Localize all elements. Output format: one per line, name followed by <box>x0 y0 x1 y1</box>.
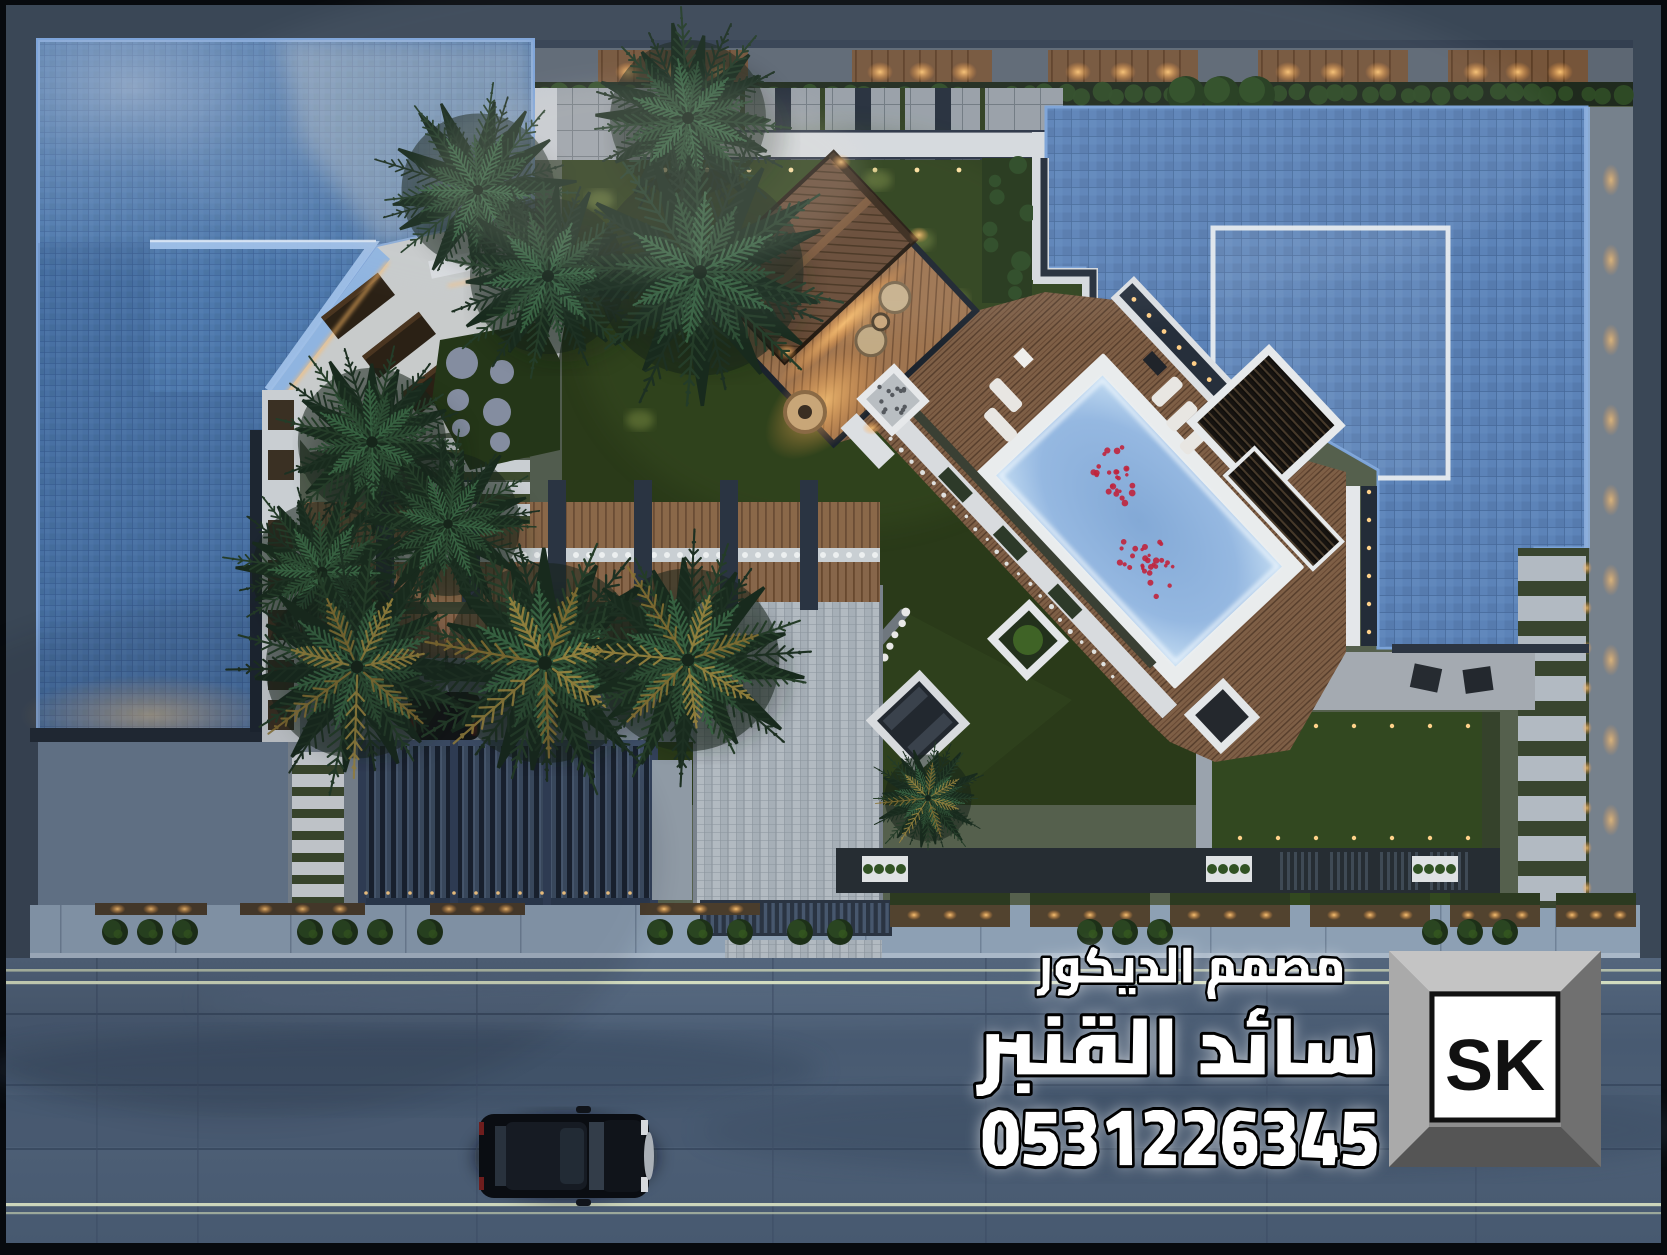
svg-text:SK: SK <box>1445 1026 1545 1106</box>
